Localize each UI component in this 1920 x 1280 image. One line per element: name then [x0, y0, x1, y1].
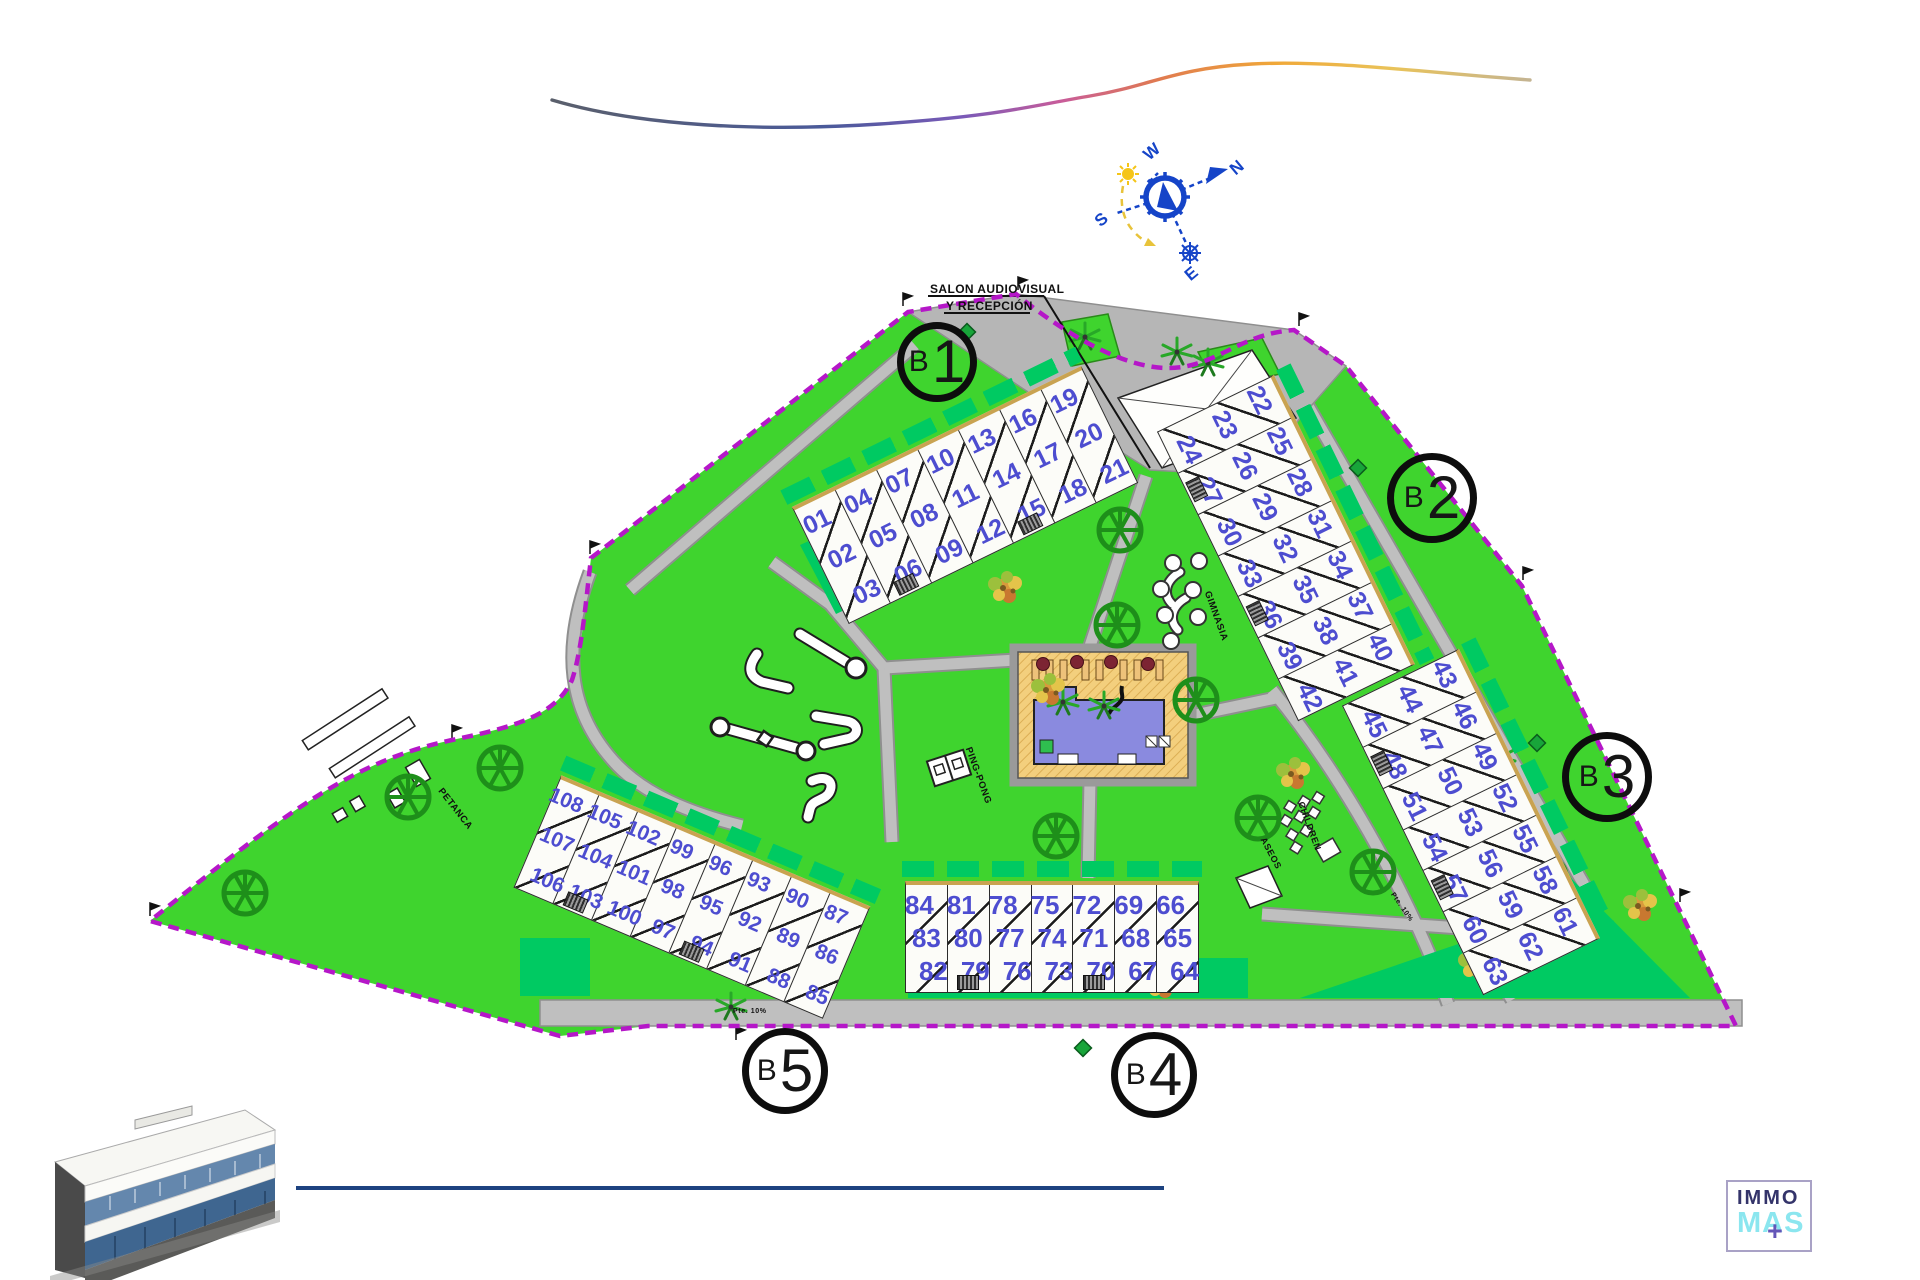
site-plan-page: W N S E SALON AUDIOVISUAL Y RECEPCIÓN 01…	[0, 0, 1920, 1280]
unit-number: 95	[688, 888, 734, 924]
logo-text-bottom: MAS+	[1737, 1209, 1810, 1238]
unit-number: 89	[765, 921, 811, 957]
area-label-ramp-2: Pte. 10%	[1389, 891, 1414, 923]
unit-number: 83	[906, 925, 947, 952]
unit-number: 87	[813, 898, 859, 934]
unit-number: 90	[774, 881, 820, 917]
immo-mas-logo: IMMO MAS+	[1726, 1180, 1812, 1252]
compass-n-label: N	[1226, 156, 1248, 179]
unit-number: 19	[1039, 379, 1091, 422]
area-label-pingpong: PING-PONG	[963, 746, 994, 806]
unit-number: 75	[1025, 892, 1066, 919]
building-b1: 0102030405060708091011121314151617181920…	[792, 366, 1138, 624]
block-number: 5	[780, 1044, 813, 1098]
unit-number: 107	[533, 823, 579, 859]
block-label-b2: B2	[1387, 453, 1477, 543]
area-label-gimnasia: GIMNASIA	[1202, 590, 1230, 643]
unit-number: 21	[1088, 449, 1140, 492]
area-label-children: CHILDREN	[1296, 800, 1323, 852]
unit-number: 66	[1150, 892, 1191, 919]
block-number: 4	[1149, 1048, 1182, 1102]
unit-number: 108	[543, 783, 589, 819]
block-letter: B	[1404, 481, 1425, 515]
unit-number: 69	[1108, 892, 1149, 919]
unit-number: 101	[610, 856, 656, 892]
unit-number: 71	[1073, 925, 1114, 952]
block-label-b5: B5	[742, 1028, 828, 1114]
unit-cell: 666564	[1157, 885, 1198, 992]
building-b2: 2223242526272829303132333435363738394041…	[1157, 375, 1415, 721]
compass-s-label: S	[1091, 209, 1113, 232]
block-number: 1	[932, 335, 965, 389]
unit-number: 96	[697, 848, 743, 884]
block-label-b1: B1	[897, 322, 977, 402]
unit-number: 85	[794, 977, 840, 1013]
block-label-b3: B3	[1562, 732, 1652, 822]
unit-number: 99	[658, 832, 704, 868]
building-b5: 1081071061051041031021011009998979695949…	[514, 775, 871, 1019]
staircase-icon	[1083, 975, 1105, 990]
area-label-ramp-1: Pte. 10%	[733, 1008, 767, 1015]
unit-number: 84	[899, 892, 940, 919]
overlay-layer: W N S E SALON AUDIOVISUAL Y RECEPCIÓN 01…	[0, 0, 1920, 1280]
unit-number: 61	[1543, 896, 1586, 948]
unit-number: 41	[1323, 646, 1366, 698]
unit-number: 74	[1032, 925, 1073, 952]
plus-icon: +	[1767, 1218, 1784, 1245]
compass-w-label: W	[1139, 139, 1164, 165]
unit-number: 78	[983, 892, 1024, 919]
reception-label-line1: SALON AUDIOVISUAL	[930, 282, 1064, 296]
unit-number: 93	[735, 865, 781, 901]
block-letter: B	[757, 1054, 778, 1088]
block-number: 3	[1602, 750, 1635, 804]
compass-e-label: E	[1181, 263, 1203, 286]
area-label-petanca: PETANCA	[436, 786, 475, 832]
unit-number: 42	[1288, 671, 1331, 723]
logo-text-top: IMMO	[1737, 1188, 1810, 1208]
building-b3: 4344454647484950515253545556575859606162…	[1342, 649, 1600, 995]
staircase-icon	[957, 975, 979, 990]
unit-number: 72	[1066, 892, 1107, 919]
block-number: 2	[1427, 471, 1460, 525]
unit-number: 65	[1157, 925, 1198, 952]
unit-number: 102	[620, 816, 666, 852]
unit-number: 105	[581, 799, 627, 835]
unit-number: 104	[572, 839, 618, 875]
block-letter: B	[909, 345, 930, 379]
reception-label-line2: Y RECEPCIÓN	[946, 299, 1033, 313]
unit-number: 68	[1115, 925, 1156, 952]
unit-number: 63	[1473, 945, 1516, 997]
block-letter: B	[1579, 760, 1600, 794]
block-label-b4: B4	[1111, 1032, 1197, 1118]
block-letter: B	[1126, 1058, 1147, 1092]
unit-number: 80	[948, 925, 989, 952]
area-label-aseos: ASEOS	[1259, 836, 1284, 871]
unit-number: 86	[803, 938, 849, 974]
unit-number: 64	[1164, 958, 1205, 985]
unit-number: 77	[990, 925, 1031, 952]
building-b4: 8483828180797877767574737271706968676665…	[905, 881, 1199, 993]
unit-number: 81	[941, 892, 982, 919]
unit-number: 62	[1508, 920, 1551, 972]
unit-number: 40	[1358, 622, 1401, 674]
unit-number: 20	[1063, 414, 1115, 457]
unit-number: 98	[649, 872, 695, 908]
unit-number: 92	[726, 905, 772, 941]
